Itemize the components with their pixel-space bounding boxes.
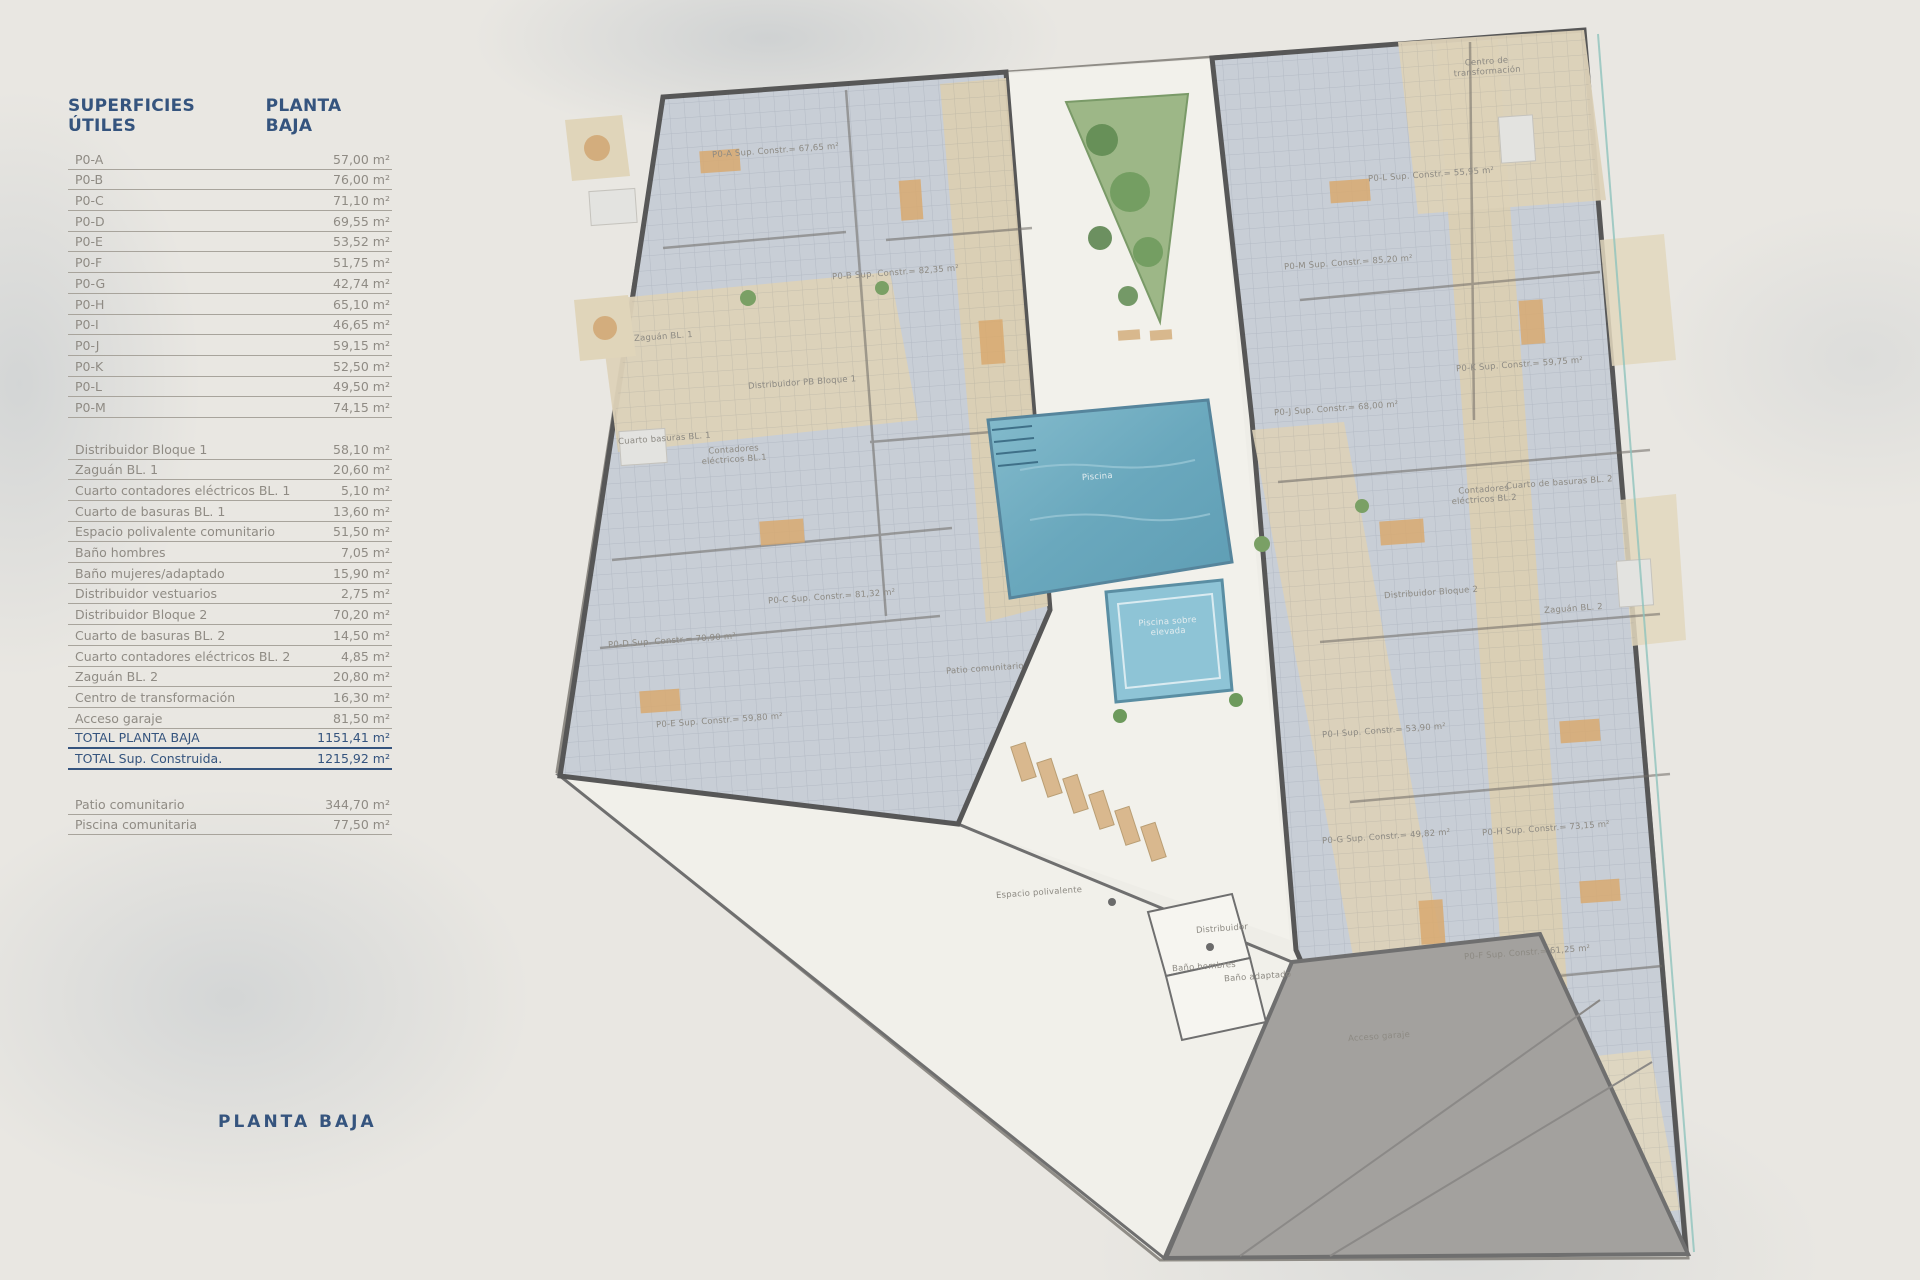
plan-label-piscina: Piscina [1082,471,1113,483]
terrace-right-1 [1600,234,1676,366]
floor-plan: P0-A Sup. Constr.= 67,65 m² P0-B Sup. Co… [0,0,1920,1280]
left-terraces [565,115,636,361]
pool [988,400,1232,598]
floor-plan-drawing [0,0,1920,1280]
